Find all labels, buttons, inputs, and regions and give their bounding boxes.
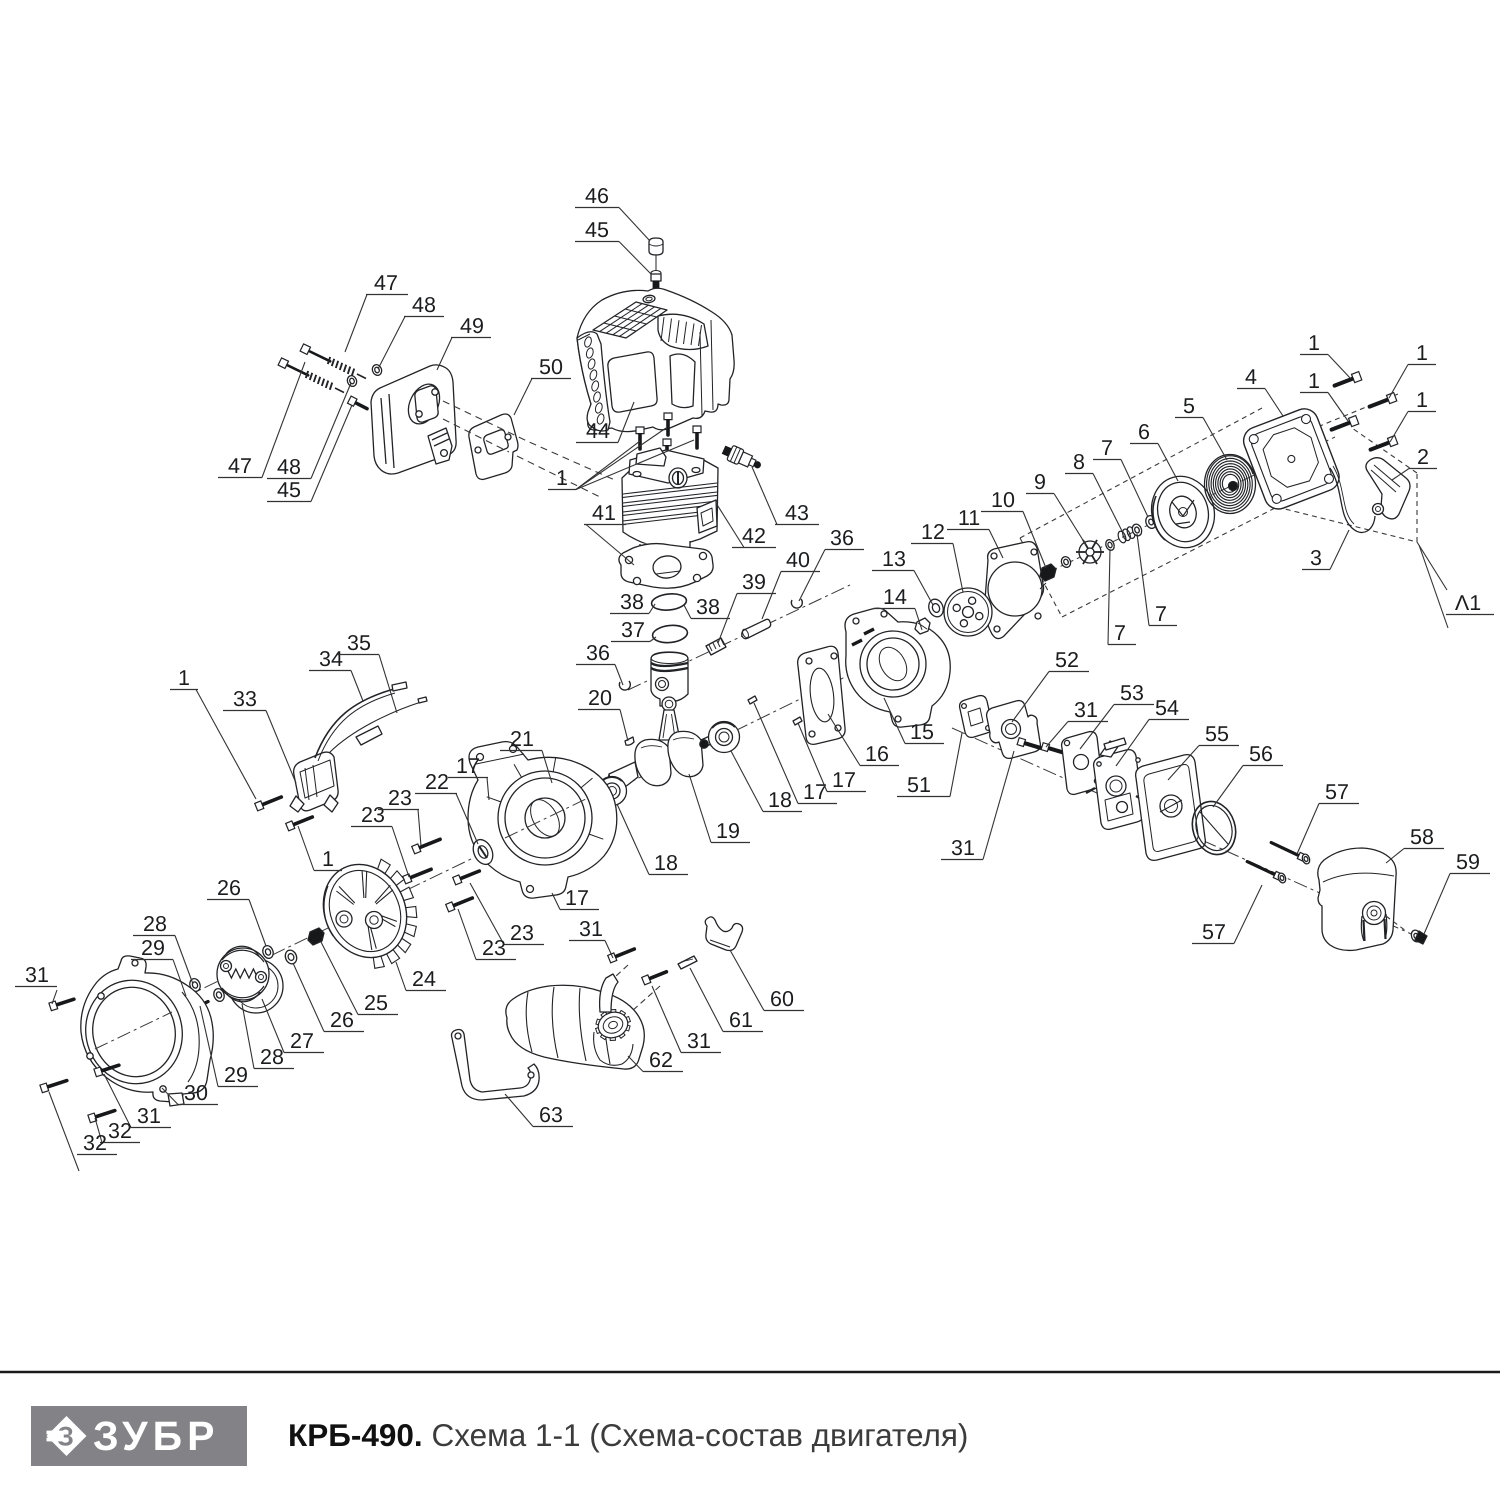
svg-text:36: 36 [830, 526, 854, 550]
svg-text:Λ1: Λ1 [1455, 591, 1481, 615]
svg-text:9: 9 [1034, 470, 1046, 494]
svg-text:1: 1 [556, 466, 568, 490]
svg-text:1: 1 [1416, 341, 1428, 365]
svg-text:7: 7 [1101, 436, 1113, 460]
svg-text:31: 31 [1074, 698, 1098, 722]
svg-text:10: 10 [991, 488, 1015, 512]
svg-text:29: 29 [141, 936, 165, 960]
svg-text:39: 39 [742, 570, 766, 594]
svg-text:18: 18 [654, 851, 678, 875]
svg-text:33: 33 [233, 687, 257, 711]
svg-text:36: 36 [586, 641, 610, 665]
svg-text:28: 28 [260, 1045, 284, 1069]
svg-text:47: 47 [228, 454, 252, 478]
svg-text:45: 45 [585, 218, 609, 242]
svg-text:41: 41 [592, 501, 616, 525]
svg-text:62: 62 [649, 1048, 673, 1072]
svg-text:23: 23 [510, 921, 534, 945]
svg-text:1: 1 [178, 666, 190, 690]
svg-text:31: 31 [687, 1029, 711, 1053]
svg-text:27: 27 [290, 1029, 314, 1053]
svg-text:48: 48 [277, 455, 301, 479]
svg-text:54: 54 [1155, 696, 1179, 720]
svg-text:20: 20 [588, 686, 612, 710]
svg-text:47: 47 [374, 271, 398, 295]
svg-text:17: 17 [456, 754, 480, 778]
svg-text:23: 23 [388, 786, 412, 810]
svg-text:38: 38 [620, 590, 644, 614]
svg-text:42: 42 [742, 524, 766, 548]
svg-text:37: 37 [621, 618, 645, 642]
svg-text:49: 49 [460, 314, 484, 338]
svg-text:13: 13 [882, 547, 906, 571]
svg-text:4: 4 [1245, 365, 1257, 389]
svg-text:52: 52 [1055, 648, 1079, 672]
svg-text:57: 57 [1325, 780, 1349, 804]
svg-text:50: 50 [539, 355, 563, 379]
svg-text:31: 31 [137, 1104, 161, 1128]
svg-text:6: 6 [1138, 420, 1150, 444]
svg-text:8: 8 [1073, 450, 1085, 474]
svg-text:44: 44 [586, 419, 610, 443]
svg-text:58: 58 [1410, 825, 1434, 849]
svg-text:28: 28 [143, 912, 167, 936]
svg-text:1: 1 [1308, 331, 1320, 355]
svg-text:26: 26 [330, 1008, 354, 1032]
svg-text:12: 12 [921, 520, 945, 544]
svg-text:1: 1 [1416, 388, 1428, 412]
svg-text:25: 25 [364, 991, 388, 1015]
svg-text:16: 16 [865, 742, 889, 766]
svg-text:3: 3 [1310, 546, 1322, 570]
svg-text:29: 29 [224, 1063, 248, 1087]
svg-text:КРБ-490. Схема 1-1 (Схема-сост: КРБ-490. Схема 1-1 (Схема-состав двигате… [288, 1417, 968, 1453]
svg-text:26: 26 [217, 876, 241, 900]
svg-text:5: 5 [1183, 394, 1195, 418]
svg-text:40: 40 [786, 548, 810, 572]
svg-text:34: 34 [319, 647, 343, 671]
svg-text:30: 30 [184, 1081, 208, 1105]
svg-text:23: 23 [482, 936, 506, 960]
svg-text:31: 31 [579, 917, 603, 941]
svg-text:32: 32 [108, 1119, 132, 1143]
svg-text:14: 14 [883, 585, 907, 609]
svg-text:ЗУБР: ЗУБР [93, 1413, 219, 1459]
svg-text:22: 22 [425, 770, 449, 794]
svg-text:7: 7 [1114, 621, 1126, 645]
svg-text:51: 51 [907, 773, 931, 797]
svg-text:43: 43 [785, 501, 809, 525]
svg-text:32: 32 [83, 1131, 107, 1155]
svg-text:1: 1 [1308, 369, 1320, 393]
svg-text:55: 55 [1205, 722, 1229, 746]
svg-text:59: 59 [1456, 850, 1480, 874]
svg-text:38: 38 [696, 595, 720, 619]
svg-text:З: З [57, 1422, 74, 1452]
svg-text:60: 60 [770, 987, 794, 1011]
svg-text:61: 61 [729, 1008, 753, 1032]
svg-text:46: 46 [585, 184, 609, 208]
svg-text:63: 63 [539, 1103, 563, 1127]
svg-text:48: 48 [412, 293, 436, 317]
svg-text:21: 21 [510, 727, 534, 751]
svg-text:56: 56 [1249, 742, 1273, 766]
svg-text:35: 35 [347, 631, 371, 655]
svg-text:53: 53 [1120, 681, 1144, 705]
svg-text:17: 17 [832, 768, 856, 792]
svg-text:1: 1 [322, 847, 334, 871]
svg-text:2: 2 [1417, 445, 1429, 469]
svg-text:23: 23 [361, 803, 385, 827]
svg-text:18: 18 [768, 788, 792, 812]
svg-text:31: 31 [951, 836, 975, 860]
svg-text:19: 19 [716, 819, 740, 843]
svg-text:24: 24 [412, 967, 436, 991]
svg-text:31: 31 [25, 963, 49, 987]
svg-text:45: 45 [277, 478, 301, 502]
svg-text:57: 57 [1202, 920, 1226, 944]
svg-text:11: 11 [958, 506, 980, 530]
svg-text:15: 15 [910, 720, 934, 744]
svg-text:7: 7 [1155, 602, 1167, 626]
svg-text:17: 17 [565, 886, 589, 910]
